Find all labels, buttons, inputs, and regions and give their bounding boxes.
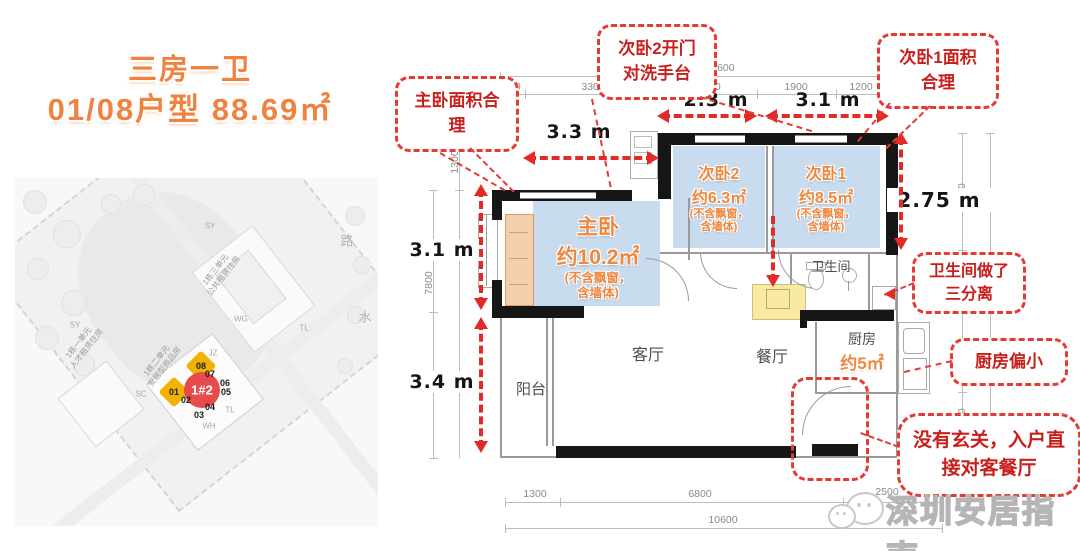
meter-label-master-width: 3.3 m	[529, 121, 629, 143]
room-name: 主卧	[577, 211, 619, 241]
wall	[800, 310, 807, 328]
meter-label-living-depth: 3.4 m	[398, 371, 486, 393]
room-name: 次卧1	[806, 160, 847, 184]
arrow-bed1-width	[770, 114, 884, 118]
tree-icon	[35, 326, 59, 350]
tree-icon	[353, 256, 371, 274]
bathroom-label: 卫生间	[800, 256, 862, 275]
window	[795, 135, 847, 143]
map-label-road: 路	[340, 231, 353, 250]
infographic-canvas: 三房一卫 01/08户型 88.69㎡ SY 路 水 WG TL SY JZ S…	[0, 0, 1080, 551]
dim-bottom-total: 10600	[688, 514, 758, 526]
window	[520, 192, 596, 199]
meter-label-bed1-width: 3.1 m	[778, 89, 878, 111]
tree-icon	[337, 358, 353, 374]
tick	[505, 498, 506, 507]
unit-05-label: 05	[221, 387, 231, 397]
arrow-master-depth	[479, 189, 483, 305]
arrow-bed2-door-to-basin	[771, 216, 775, 282]
wall	[800, 310, 894, 321]
tick	[429, 312, 438, 313]
map-label: SY	[70, 321, 81, 330]
dim-left-outer: 7800	[423, 261, 435, 305]
door-arc-bed2	[700, 252, 737, 289]
tree-icon	[23, 190, 47, 214]
arrow-master-width	[528, 156, 654, 160]
map-label: TL	[225, 406, 234, 415]
balcony-wall	[500, 318, 502, 458]
tick	[958, 250, 967, 251]
arrow-bed1-depth	[899, 137, 903, 245]
map-label: SY	[205, 222, 216, 231]
callout-leader	[591, 99, 612, 187]
wall	[658, 133, 671, 199]
kitchen-label: 厨房	[832, 329, 892, 349]
tree-icon	[101, 194, 121, 214]
dining-room-label: 餐厅	[742, 343, 802, 367]
room-area: 约8.5㎡	[799, 184, 853, 208]
map-label: TL	[299, 324, 308, 333]
tree-icon	[27, 258, 49, 280]
unit-07-label: 07	[205, 369, 215, 379]
watermark: 深圳安居指南	[828, 478, 1080, 542]
meter-label-master-depth: 3.1 m	[398, 239, 486, 261]
tick	[505, 524, 506, 533]
arrow-living-depth	[479, 322, 483, 448]
bay-window-line	[486, 214, 487, 286]
wall	[492, 190, 502, 220]
tree-icon	[53, 220, 81, 248]
unit-02-label: 02	[181, 395, 191, 405]
tick	[958, 133, 967, 134]
room-note: (不含飘窗， 含墙体)	[690, 208, 749, 234]
sink-stem	[848, 281, 849, 291]
room-name: 次卧2	[699, 160, 740, 184]
unit-03-label: 03	[194, 410, 204, 420]
tick	[986, 133, 995, 134]
tick	[455, 190, 464, 191]
window	[695, 135, 745, 143]
room-note: (不含飘窗， 含墙体)	[797, 208, 856, 234]
room-area: 约10.2㎡	[557, 241, 640, 271]
leader-arrowhead	[878, 288, 895, 300]
watermark-text: 深圳安居指南	[886, 486, 1080, 551]
dim-bottom: 6800	[675, 488, 725, 500]
callout-kitchen: 厨房偏小	[950, 338, 1068, 386]
map-label: SC	[135, 390, 146, 399]
arrow-bed2-width	[662, 114, 752, 118]
living-room-label: 客厅	[618, 341, 678, 365]
balcony-label: 阳台	[506, 378, 556, 399]
wall	[492, 306, 584, 318]
tick	[429, 458, 438, 459]
map-label: WG	[234, 315, 248, 324]
wall	[556, 446, 796, 458]
tree-icon	[345, 206, 365, 226]
dim-line	[500, 76, 940, 77]
callout-bed1: 次卧1面积 合理	[877, 33, 999, 109]
wechat-icon-small	[828, 504, 856, 529]
site-map: SY 路 水 WG TL SY JZ SC TL WH 1栋三单元 公共租赁住房…	[15, 178, 378, 526]
tick	[429, 190, 438, 191]
unit-1-2-label: 1#2	[191, 383, 213, 398]
callout-bed2-door: 次卧2开门 对洗手台	[597, 24, 717, 100]
kitchen-sink-icon	[903, 328, 925, 354]
master-bedroom-label: 主卧 约10.2㎡ (不含飘窗， 含墙体)	[520, 208, 676, 304]
bedroom1-label: 次卧1 约8.5㎡ (不含飘窗， 含墙体)	[772, 148, 880, 246]
page-subtitle: 01/08户型 88.69㎡	[28, 84, 352, 129]
wall-line	[868, 254, 870, 312]
kitchen-area-label: 约5㎡	[832, 349, 892, 374]
ac-unit	[634, 136, 652, 148]
tick	[958, 392, 967, 393]
unit-01-label: 01	[169, 387, 179, 397]
callout-bathroom: 卫生间做了 三分离	[912, 252, 1026, 314]
map-label: WH	[202, 422, 215, 431]
dim-line	[433, 190, 434, 458]
balcony-wall	[500, 456, 558, 458]
room-area: 约6.3㎡	[692, 184, 746, 208]
tree-icon	[133, 184, 155, 206]
page-title: 三房一卫	[60, 46, 320, 88]
callout-master: 主卧面积合 理	[395, 76, 519, 152]
stove-icon	[903, 358, 927, 390]
bedroom2-label: 次卧2 约6.3㎡ (不含飘窗， 含墙体)	[671, 148, 767, 246]
room-note: (不含飘窗， 含墙体)	[565, 271, 632, 301]
tick	[560, 498, 561, 507]
map-label: JZ	[209, 349, 218, 358]
unit-04-label: 04	[205, 402, 215, 412]
dim-bottom: 1300	[510, 488, 560, 500]
tree-icon	[61, 290, 87, 316]
entry-highlight	[791, 377, 869, 481]
map-label-water: 水	[358, 307, 371, 326]
